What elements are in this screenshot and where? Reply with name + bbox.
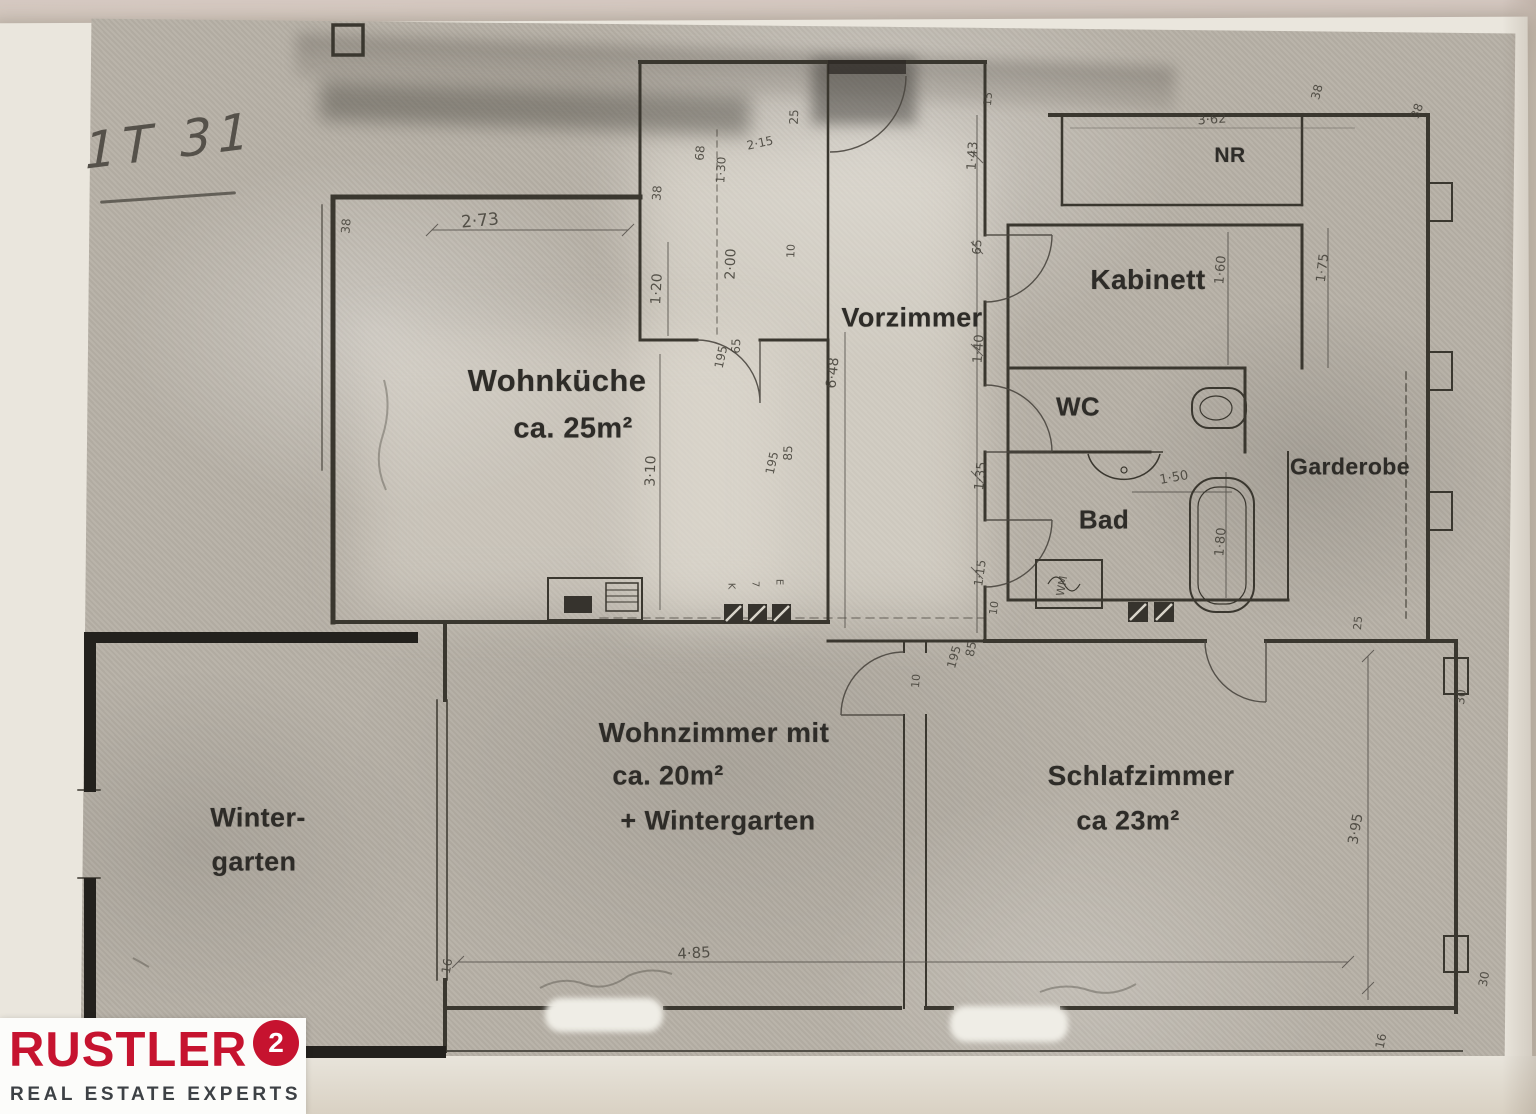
dimension-label: 1·80 — [1212, 527, 1229, 557]
dimension-label: 65 — [729, 338, 744, 354]
dimension-label: 3·10 — [642, 455, 659, 487]
room-label-wohnzimmer-extra: + Wintergarten — [620, 806, 815, 837]
dimension-label: 25 — [787, 109, 802, 125]
dimension-label: 85 — [963, 640, 979, 657]
dimension-label: 1·35 — [972, 461, 990, 491]
dimension-label: 38 — [1308, 83, 1325, 101]
dimension-label: 1·40 — [971, 334, 988, 364]
room-label-bad: Bad — [1079, 505, 1129, 536]
dimension-label: 2·73 — [460, 209, 499, 232]
dimension-label: 25 — [1351, 615, 1365, 630]
dimension-label: E — [774, 579, 785, 585]
room-label-schlafzimmer: Schlafzimmer — [1048, 760, 1235, 792]
dimension-label: 65 — [969, 239, 984, 255]
logo-badge-icon: 2 — [253, 1020, 299, 1066]
dimension-label: 16 — [439, 957, 455, 974]
dimension-label: 38 — [338, 218, 353, 234]
dimension-label: 38 — [1408, 101, 1426, 120]
dimension-label: 195 — [944, 644, 964, 670]
room-label-kabinett: Kabinett — [1090, 264, 1205, 296]
dimension-label: 30 — [1453, 688, 1469, 705]
dimension-label: 3·62 — [1197, 112, 1227, 129]
room-label-wintergarten-1: Winter- — [210, 803, 306, 834]
room-label-wohnkueche: Wohnküche — [468, 363, 647, 399]
room-label-wohnzimmer-area: ca. 20m² — [612, 761, 723, 792]
dimension-label: 10 — [909, 673, 923, 688]
logo-brand-text: RUSTLER — [9, 1026, 247, 1075]
dimension-label: 15 — [981, 91, 995, 106]
dimension-label: 1·30 — [713, 156, 728, 183]
dimension-label: 195 — [763, 450, 781, 475]
room-label-vorzimmer: Vorzimmer — [841, 303, 982, 334]
room-label-garderobe: Garderobe — [1290, 454, 1410, 481]
dimension-label: 1·50 — [1158, 468, 1189, 488]
dimension-label: 30 — [1476, 970, 1492, 987]
dimension-labels-layer: 2·733838681·302·15251·202·0010651953·108… — [0, 0, 1536, 1114]
dimension-label: 1·60 — [1212, 255, 1229, 285]
dimension-label: 2·00 — [722, 248, 739, 280]
dimension-label: 4·85 — [677, 943, 711, 963]
rustler-logo: RUSTLER 2 REAL ESTATE EXPERTS — [0, 1018, 306, 1114]
floorplan-photo: Wohnküche ca. 25m² Vorzimmer NR Kabinett… — [0, 0, 1536, 1114]
dimension-label: 10 — [784, 244, 797, 258]
dimension-label: 16 — [1373, 1032, 1390, 1050]
dimension-label: 10 — [987, 600, 1002, 616]
dimension-label: 1·20 — [648, 273, 666, 305]
dimension-label: K — [726, 583, 737, 590]
dimension-label: 7 — [750, 581, 761, 587]
room-label-schlafzimmer-area: ca 23m² — [1076, 806, 1179, 837]
dimension-label: 85 — [781, 445, 796, 461]
room-label-wohnzimmer: Wohnzimmer mit — [599, 717, 830, 749]
room-label-wohnkueche-area: ca. 25m² — [513, 413, 632, 446]
dimension-label: 2·15 — [745, 133, 774, 152]
dimension-label: 1·43 — [965, 141, 982, 171]
dimension-label: 38 — [649, 185, 664, 201]
dimension-label: 1·75 — [1314, 253, 1332, 284]
dimension-label: 68 — [692, 145, 707, 161]
dimension-label: 1·15 — [971, 559, 989, 587]
room-label-wintergarten-2: garten — [212, 847, 297, 878]
dimension-label: 6·48 — [823, 357, 842, 390]
dimension-label: WM — [1054, 575, 1070, 597]
dimension-label: 195 — [712, 344, 730, 369]
logo-tagline: REAL ESTATE EXPERTS — [10, 1084, 301, 1106]
dimension-label: 3·95 — [1345, 812, 1366, 845]
room-label-wc: WC — [1056, 392, 1100, 423]
room-label-nr: NR — [1214, 144, 1245, 168]
